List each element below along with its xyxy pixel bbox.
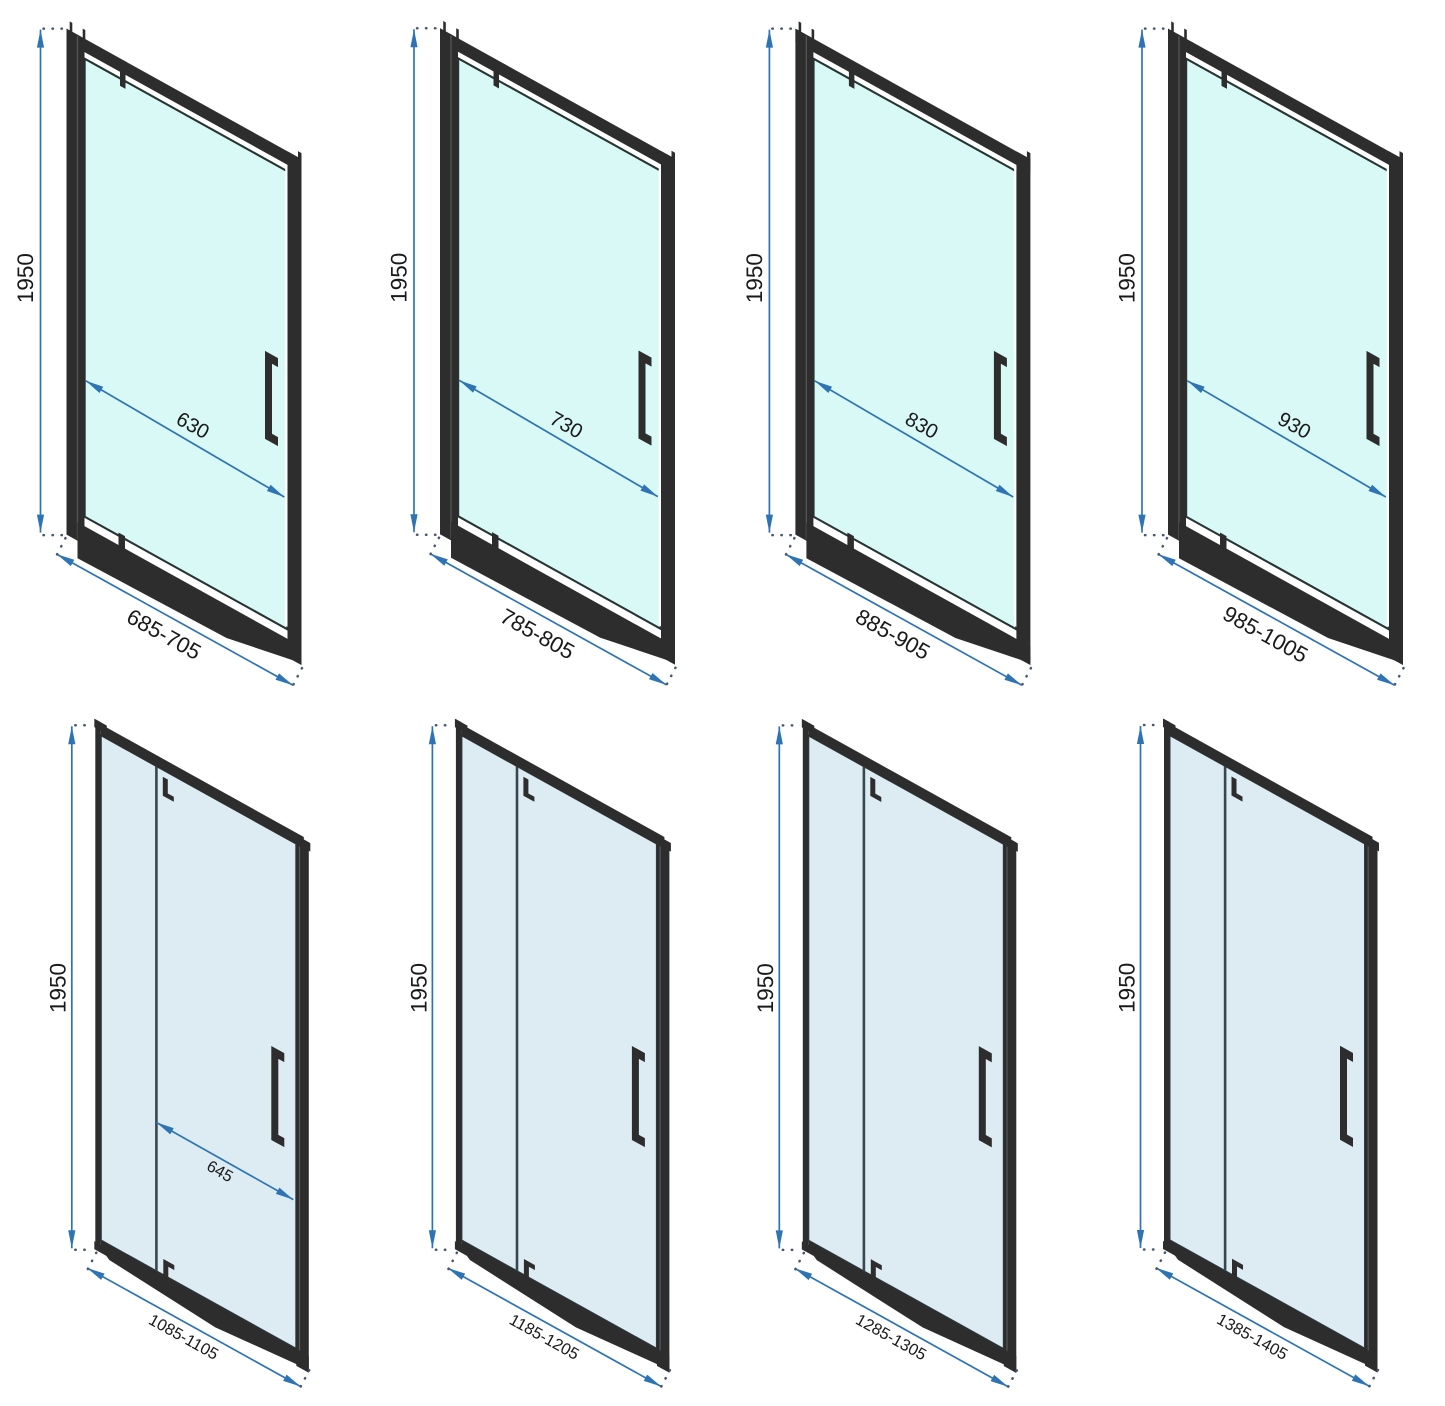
- svg-text:1950: 1950: [753, 963, 778, 1013]
- svg-text:1950: 1950: [1114, 963, 1139, 1013]
- svg-text:1950: 1950: [1114, 253, 1139, 303]
- svg-text:1950: 1950: [46, 963, 71, 1013]
- svg-text:1950: 1950: [386, 253, 411, 303]
- svg-text:1950: 1950: [406, 963, 431, 1013]
- svg-text:1950: 1950: [13, 253, 38, 303]
- svg-text:1950: 1950: [742, 253, 767, 303]
